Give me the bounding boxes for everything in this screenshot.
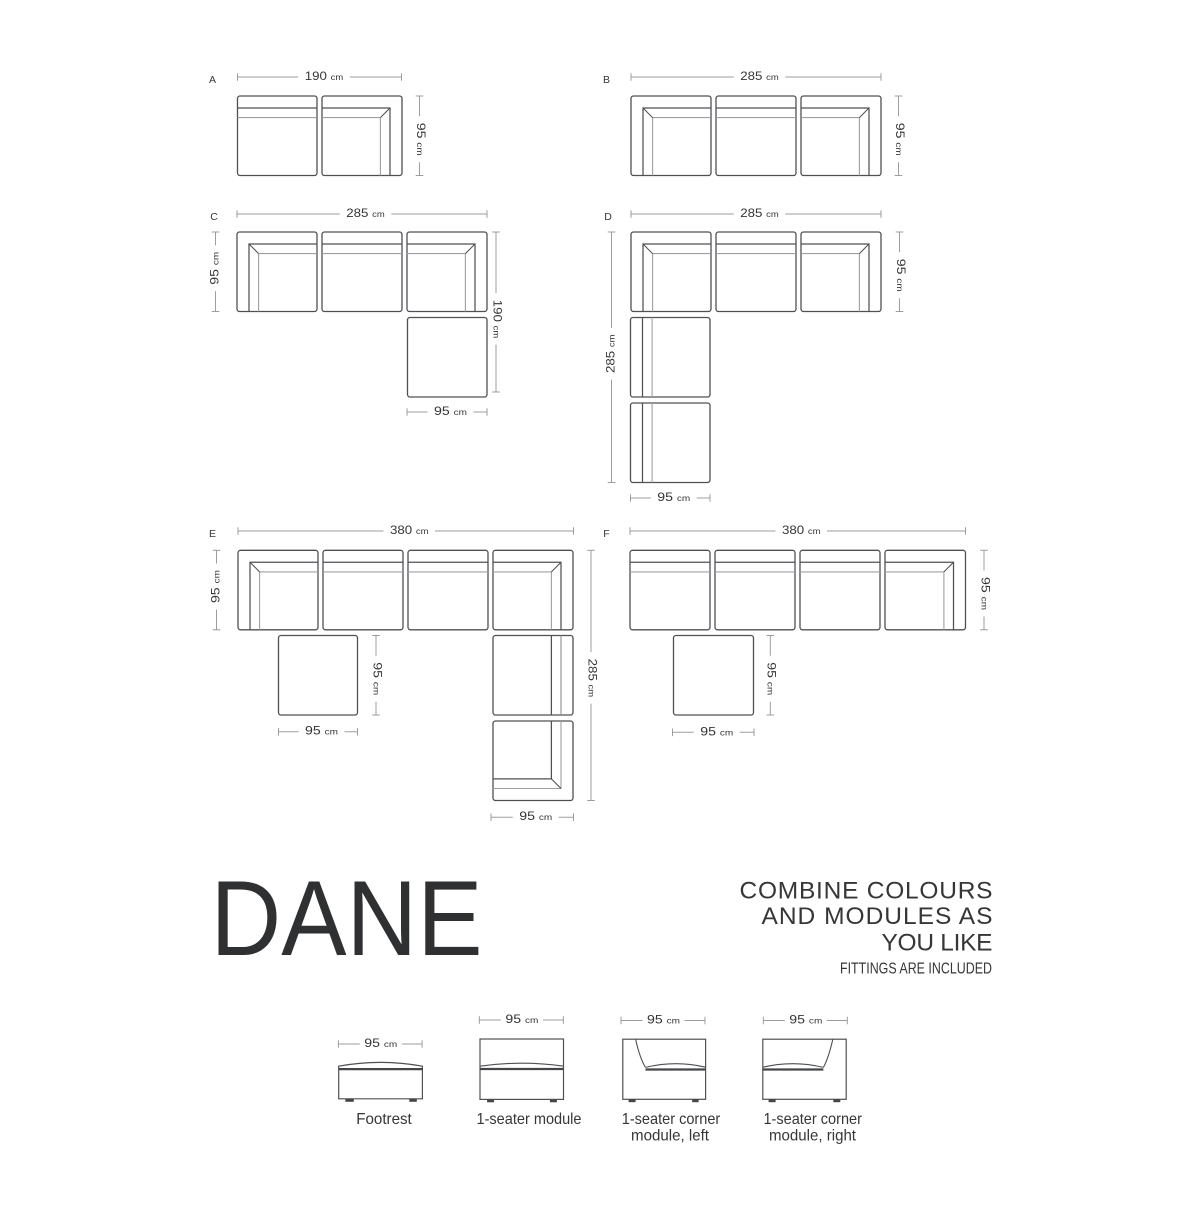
svg-text:95 cm: 95 cm	[765, 662, 779, 695]
svg-text:95 cm: 95 cm	[208, 252, 222, 285]
svg-text:95 cm: 95 cm	[647, 1013, 680, 1027]
svg-text:module, right: module, right	[769, 1128, 857, 1145]
svg-text:FITTINGS ARE INCLUDED: FITTINGS ARE INCLUDED	[840, 960, 992, 977]
svg-text:1-seater module: 1-seater module	[477, 1111, 582, 1128]
svg-text:95 cm: 95 cm	[414, 123, 428, 156]
svg-text:1-seater corner: 1-seater corner	[622, 1111, 721, 1128]
svg-text:190 cm: 190 cm	[305, 69, 344, 83]
svg-text:95 cm: 95 cm	[364, 1036, 397, 1050]
svg-text:D: D	[604, 211, 612, 223]
svg-text:95 cm: 95 cm	[978, 577, 992, 610]
svg-text:COMBINE COLOURS: COMBINE COLOURS	[740, 877, 993, 904]
svg-text:95 cm: 95 cm	[700, 724, 733, 738]
svg-text:95 cm: 95 cm	[789, 1013, 822, 1027]
svg-text:95 cm: 95 cm	[434, 404, 467, 418]
svg-text:95 cm: 95 cm	[305, 724, 338, 738]
svg-text:95 cm: 95 cm	[370, 662, 384, 695]
svg-text:190 cm: 190 cm	[490, 300, 504, 339]
svg-text:95 cm: 95 cm	[893, 123, 907, 156]
svg-text:module, left: module, left	[631, 1128, 710, 1145]
svg-text:95 cm: 95 cm	[505, 1012, 538, 1026]
svg-text:380 cm: 380 cm	[782, 523, 821, 537]
svg-text:380 cm: 380 cm	[390, 523, 429, 537]
svg-text:C: C	[210, 211, 218, 223]
svg-text:95 cm: 95 cm	[894, 259, 908, 292]
svg-text:B: B	[603, 74, 610, 86]
svg-text:Footrest: Footrest	[356, 1111, 412, 1128]
svg-text:1-seater corner: 1-seater corner	[763, 1111, 862, 1128]
svg-text:285 cm: 285 cm	[604, 335, 618, 374]
svg-text:95 cm: 95 cm	[657, 490, 690, 504]
svg-text:285 cm: 285 cm	[585, 659, 599, 698]
svg-text:95 cm: 95 cm	[519, 809, 552, 823]
svg-text:AND MODULES AS: AND MODULES AS	[762, 903, 993, 930]
svg-text:F: F	[603, 528, 609, 540]
svg-text:YOU LIKE: YOU LIKE	[882, 930, 993, 957]
svg-text:285 cm: 285 cm	[740, 206, 779, 220]
svg-text:95 cm: 95 cm	[209, 570, 223, 603]
svg-text:DANE: DANE	[211, 858, 483, 978]
svg-text:A: A	[209, 74, 216, 86]
svg-text:E: E	[209, 528, 216, 540]
svg-text:285 cm: 285 cm	[346, 206, 385, 220]
svg-text:285 cm: 285 cm	[740, 69, 779, 83]
